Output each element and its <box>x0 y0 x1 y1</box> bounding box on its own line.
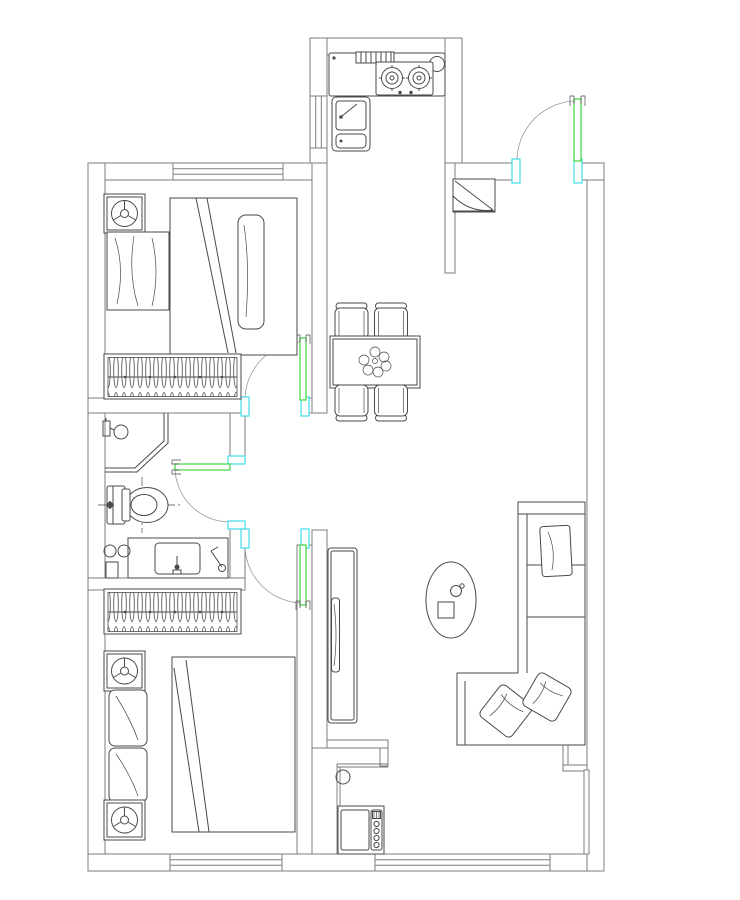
second-bedroom-door-leaf[interactable] <box>300 545 306 605</box>
tv-icon <box>332 598 340 672</box>
wall-bathroom-bottom <box>88 578 245 590</box>
wardrobe-second <box>104 589 241 634</box>
kitchen <box>329 52 445 151</box>
tv-cabinet <box>328 548 357 723</box>
floor-plan-canvas <box>0 0 740 900</box>
vent-grille-icon <box>356 52 394 63</box>
wall-hall-west-upper <box>312 163 327 413</box>
wall-entry-top-left <box>445 163 518 180</box>
wardrobe-master <box>104 354 241 399</box>
bathroom <box>98 413 228 578</box>
window-kitchen-left <box>310 96 327 148</box>
wall-right <box>587 163 604 871</box>
wall-sofa-step-bottom <box>563 765 587 771</box>
sink-cabinet-icon <box>332 97 370 151</box>
pillow-lower <box>109 748 147 802</box>
dining-area <box>330 303 420 421</box>
chair-top-right <box>375 303 408 339</box>
walls <box>88 38 604 871</box>
sofa-back-pillow <box>540 525 573 577</box>
nightstand-with-lamp <box>104 194 145 233</box>
wall-balcony-step-side <box>380 748 388 766</box>
wall-bedroom1-bottom <box>88 398 245 413</box>
wall-balcony-right <box>584 770 589 854</box>
second-bedroom-door[interactable] <box>241 529 310 610</box>
bed-pillow <box>238 215 264 329</box>
gas-stove-icon <box>376 62 433 95</box>
wall-left <box>88 163 105 871</box>
entry-door[interactable] <box>512 96 585 183</box>
shoe-cabinet <box>453 179 495 212</box>
coffee-table <box>426 562 476 638</box>
pillow-upper <box>109 690 147 746</box>
entry-door-leaf[interactable] <box>574 99 581 161</box>
second-bedroom <box>104 589 295 840</box>
floor-plan-page <box>0 0 740 900</box>
chair-bottom-left <box>335 385 368 421</box>
chair-bottom-right <box>375 385 408 421</box>
wall-living-west <box>312 530 327 748</box>
corner-shower <box>103 413 168 472</box>
vanity <box>128 538 228 578</box>
washing-machine-icon <box>338 806 384 854</box>
folded-quilt <box>107 232 169 310</box>
toilet-icon <box>98 477 180 533</box>
l-shaped-sofa <box>457 502 585 745</box>
bathroom-door[interactable] <box>172 456 245 529</box>
wall-kitchen-right <box>445 38 462 180</box>
window-balcony-bottom <box>375 854 550 871</box>
bathroom-door-leaf[interactable] <box>175 464 230 470</box>
balcony <box>336 770 384 854</box>
master-bedroom <box>104 194 297 399</box>
counter-dot <box>332 56 335 59</box>
shower-head-icon <box>103 418 128 439</box>
floor-drain-icon <box>336 770 350 784</box>
nightstand-lower <box>104 800 145 840</box>
service-taps-icon <box>104 545 130 578</box>
entry-hall <box>453 179 495 212</box>
wall-balcony-step-top <box>327 740 388 748</box>
dining-table <box>330 336 420 388</box>
living-room <box>328 502 585 745</box>
nightstand-upper <box>104 651 145 691</box>
mattress <box>172 657 295 832</box>
chair-top-left <box>335 303 368 339</box>
mattress <box>170 198 297 355</box>
window-master-top <box>173 163 283 180</box>
window-bedroom2-bottom <box>170 854 282 871</box>
master-bedroom-door-leaf[interactable] <box>300 338 306 400</box>
